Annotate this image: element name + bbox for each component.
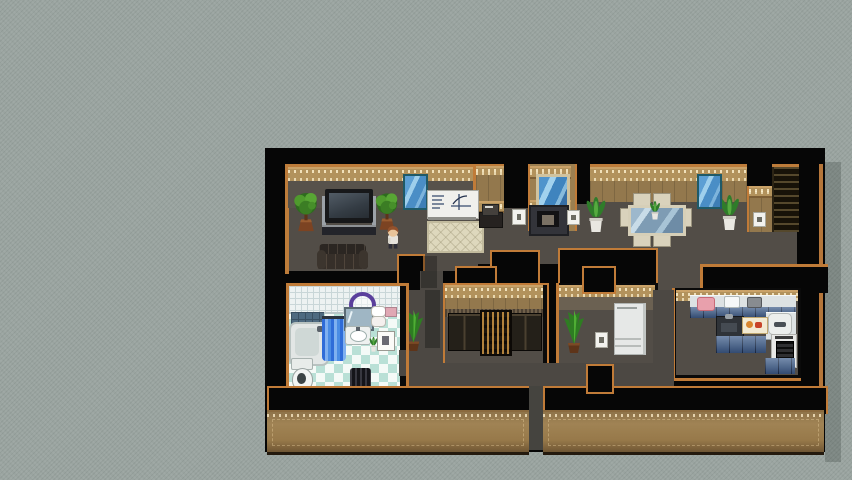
living-room-window bbox=[403, 174, 428, 210]
fridge-drawer-1 bbox=[615, 338, 641, 340]
tv-screen bbox=[329, 193, 369, 218]
south-passage bbox=[529, 386, 543, 450]
frame-print bbox=[382, 336, 389, 345]
shower-curtain bbox=[322, 316, 346, 361]
area-rug bbox=[427, 221, 484, 253]
sofa-arm-left bbox=[317, 250, 326, 269]
dining-table-set bbox=[618, 192, 694, 248]
utility-room bbox=[556, 283, 658, 367]
pillar-face bbox=[476, 175, 504, 202]
tv-base bbox=[322, 225, 376, 235]
dining-room-window bbox=[697, 174, 722, 209]
kitchen-sink bbox=[716, 316, 744, 338]
bathtub-basin bbox=[295, 328, 319, 356]
mirror-glint bbox=[347, 311, 353, 323]
bath-box-pink bbox=[385, 307, 397, 317]
toilet-seat bbox=[297, 373, 306, 384]
towel-roll-2 bbox=[371, 316, 386, 327]
outer-band-right bbox=[543, 410, 824, 455]
phone-table bbox=[479, 204, 501, 230]
kitchen-lower-cabinets bbox=[716, 336, 766, 353]
cutting-board bbox=[742, 317, 768, 334]
wall-shadow-1 bbox=[421, 256, 437, 288]
bathroom-wall-frame bbox=[377, 331, 395, 351]
rice-cooker-window bbox=[774, 322, 786, 327]
counter-pot bbox=[747, 297, 762, 308]
fireplace-stove bbox=[529, 205, 569, 236]
player-character-sprite[interactable] bbox=[385, 225, 401, 249]
fridge-drawer-2 bbox=[615, 345, 641, 347]
wall-notch-left bbox=[504, 148, 528, 208]
stove-burners bbox=[775, 336, 793, 339]
refrigerator bbox=[614, 303, 646, 355]
dining-plant-right bbox=[719, 193, 740, 231]
bathroom-door-gap bbox=[399, 350, 406, 376]
sofa bbox=[317, 242, 368, 271]
table-centerpiece-plant bbox=[649, 200, 661, 220]
east-hall-floor bbox=[653, 290, 674, 390]
display-shelf bbox=[480, 310, 512, 356]
wardrobe-right bbox=[509, 313, 542, 351]
south-wall-stub bbox=[586, 364, 614, 394]
kitchen-faucet bbox=[725, 314, 733, 319]
wall-outlet-2 bbox=[567, 210, 580, 225]
outer-band-left-panel bbox=[272, 419, 524, 446]
whiteboard-notes bbox=[429, 192, 475, 215]
storage-room bbox=[443, 283, 549, 369]
utility-wall-stub bbox=[582, 266, 616, 294]
food-red bbox=[755, 322, 762, 328]
utility-plant bbox=[561, 308, 587, 354]
kitchen-corner-cabinet bbox=[765, 358, 795, 374]
food-orange bbox=[746, 321, 753, 328]
wall-outlet-1 bbox=[512, 209, 526, 225]
kitchen bbox=[672, 288, 801, 381]
outer-band-right-panel bbox=[548, 419, 819, 446]
fridge-handle bbox=[617, 307, 637, 309]
tv-stand bbox=[322, 189, 376, 233]
hallway-shadow bbox=[425, 290, 440, 348]
potted-tree-left bbox=[291, 191, 321, 234]
sink-basin bbox=[721, 323, 737, 332]
dining-plant-left bbox=[586, 195, 606, 233]
whiteboard-tray bbox=[428, 217, 476, 220]
outer-band-left bbox=[267, 410, 529, 455]
sink-bowl bbox=[350, 330, 367, 342]
light-switch bbox=[595, 332, 608, 348]
rice-cooker bbox=[768, 313, 792, 335]
whiteboard bbox=[427, 190, 477, 224]
map-drop-shadow bbox=[825, 162, 841, 462]
telephone-slot bbox=[485, 206, 493, 208]
fireplace-interior bbox=[542, 215, 554, 225]
wardrobe-left bbox=[448, 313, 481, 351]
sink-faucet bbox=[356, 327, 360, 331]
counter-meat bbox=[697, 297, 715, 311]
sofa-arm-right bbox=[359, 250, 368, 269]
counter-dishes bbox=[724, 296, 740, 308]
game-viewport[interactable] bbox=[0, 0, 852, 480]
